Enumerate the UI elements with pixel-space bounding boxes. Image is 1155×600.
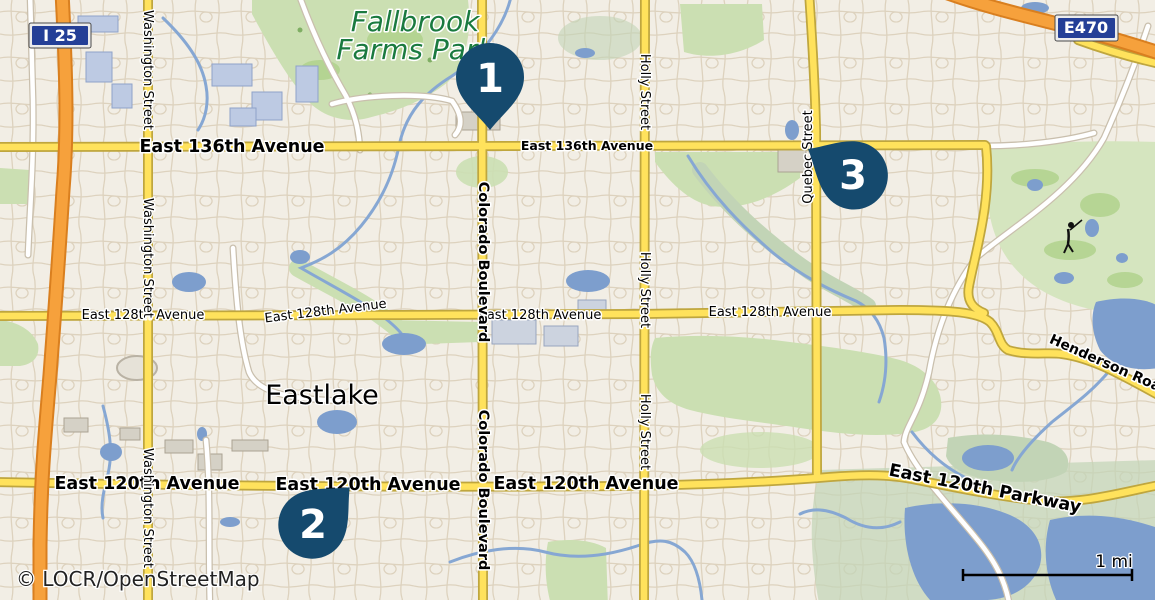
- road-label: Washington Street: [140, 448, 155, 568]
- road-label: East 136th Avenue: [521, 138, 653, 153]
- road-label: East 128th Avenue: [479, 308, 602, 323]
- road-label: Holly Street: [637, 252, 652, 328]
- road-label: Colorado Boulevard: [475, 410, 491, 571]
- marker-2-label: 2: [299, 502, 327, 548]
- road-label: Washington Street: [140, 10, 155, 130]
- town-label-eastlake: Eastlake: [265, 380, 379, 411]
- e470-shield: E470: [1055, 15, 1118, 41]
- e470-shield-label: E470: [1064, 18, 1108, 37]
- i25-shield: I 25: [29, 23, 91, 48]
- map-container: East 136th Avenue East 136th Avenue East…: [0, 0, 1155, 600]
- road-label: Colorado Boulevard: [475, 182, 491, 343]
- road-label: Holly Street: [637, 54, 652, 130]
- road-label: Washington Street: [140, 198, 155, 318]
- map-canvas[interactable]: East 136th Avenue East 136th Avenue East…: [0, 0, 1155, 600]
- road-label: East 128th Avenue: [709, 305, 832, 320]
- road-label: East 120th Avenue: [493, 474, 678, 494]
- marker-1-label: 1: [476, 56, 504, 102]
- scale-label: 1 mi: [1095, 552, 1133, 572]
- road-label: Holly Street: [637, 394, 652, 470]
- i25-shield-label: I 25: [43, 26, 77, 45]
- attribution: © LOCR/OpenStreetMap: [16, 567, 260, 591]
- marker-3-label: 3: [839, 153, 867, 199]
- road-label: East 136th Avenue: [139, 137, 324, 157]
